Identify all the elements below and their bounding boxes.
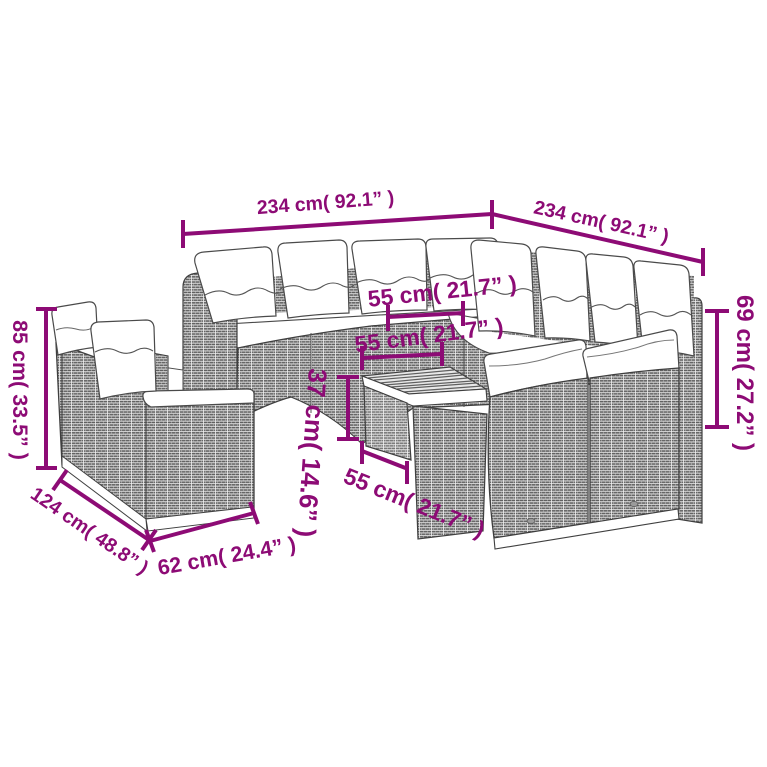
svg-text:69 cm( 27.2” ): 69 cm( 27.2” ) bbox=[731, 295, 758, 451]
svg-text:85 cm( 33.5” ): 85 cm( 33.5” ) bbox=[8, 320, 32, 460]
